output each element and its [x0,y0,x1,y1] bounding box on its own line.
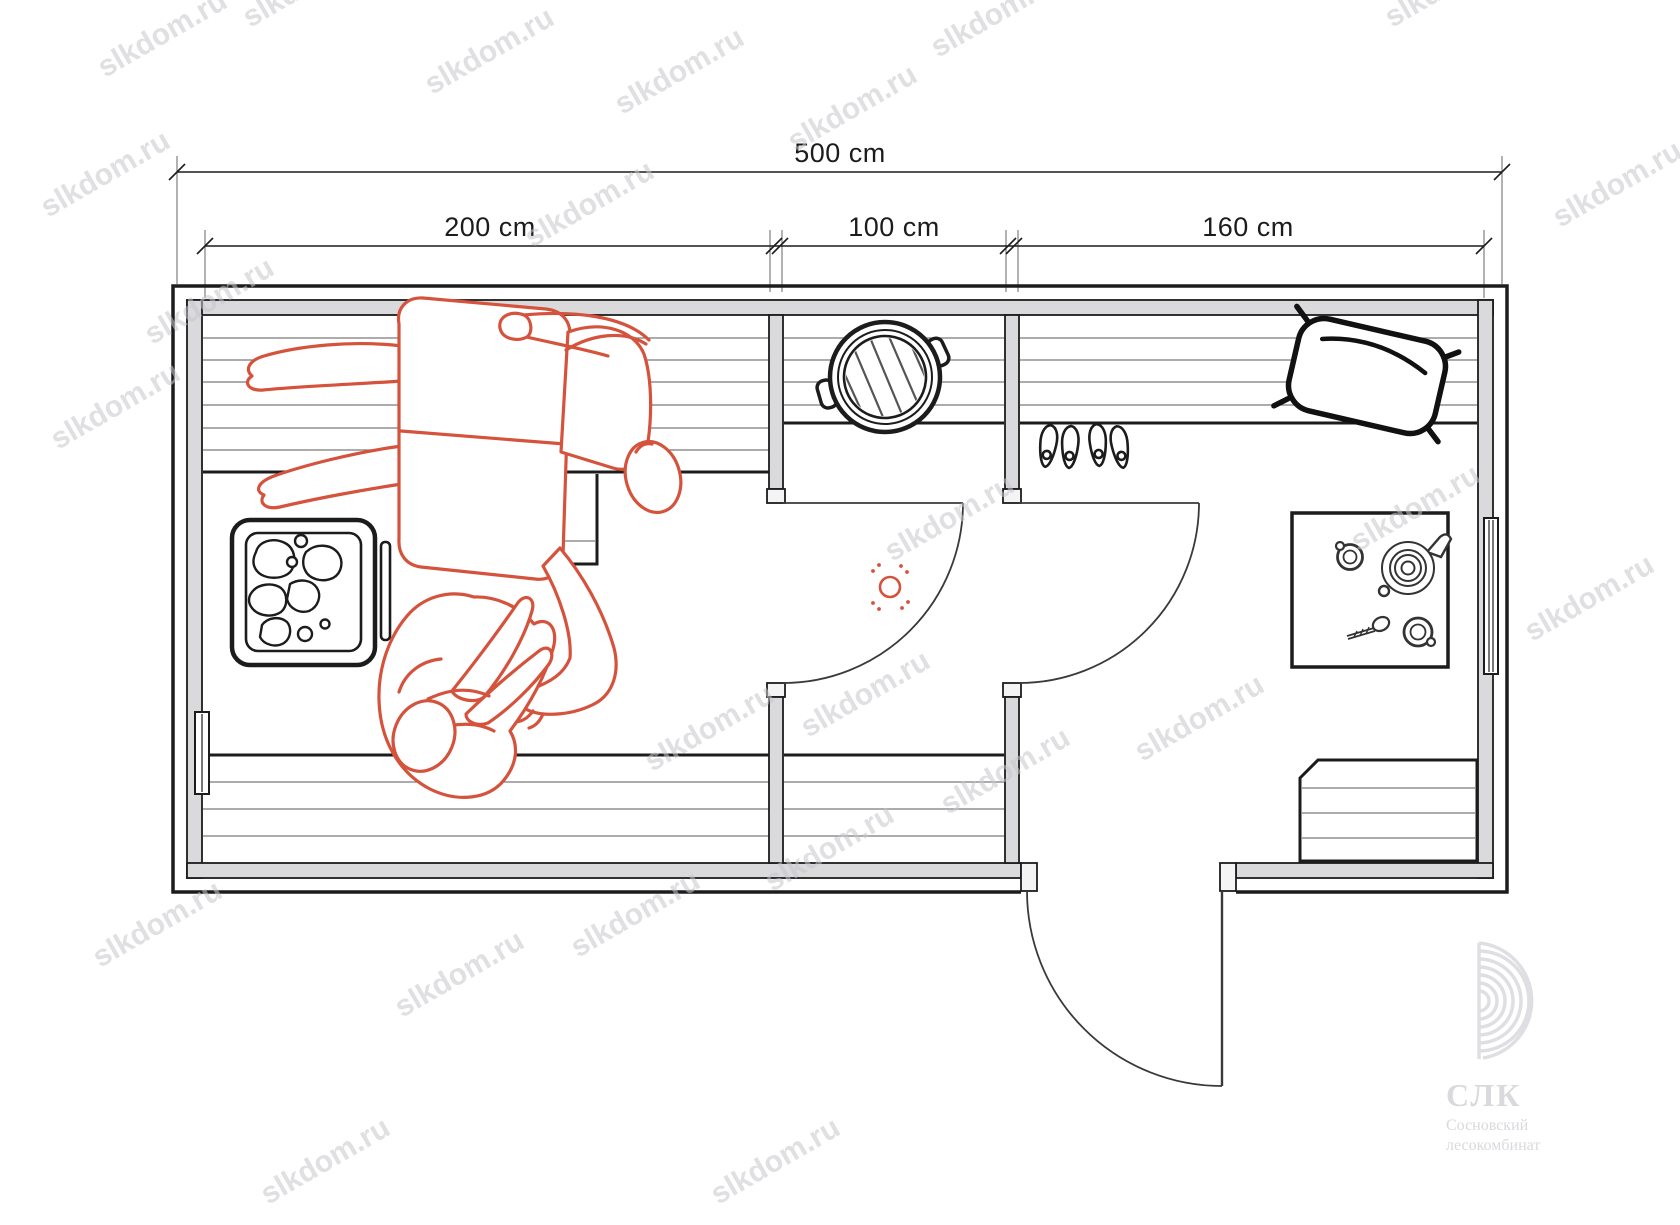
logo-subtitle-2: лесокомбинат [1446,1137,1540,1154]
brand-logo: СЛК Сосновский лесокомбинат [1446,943,1540,1154]
rest-room-door-swing [1019,503,1199,683]
entrance-jamb-left [1021,863,1037,891]
stove-guard-rail [381,542,390,640]
tree-rings-icon [1479,943,1532,1059]
partition-2-upper [1005,315,1019,489]
watermark: slkdom.ru [237,0,378,34]
wash-tub-icon [815,316,951,436]
interior-doors [783,503,1199,683]
entrance-door [1021,863,1236,1086]
dimension-total: 500 cm [169,138,1510,180]
watermark: slkdom.ru [639,678,780,778]
partition-1-upper [769,315,783,489]
slippers-icon [1037,423,1131,469]
partition-1-cap-top [767,489,785,503]
watermark: slkdom.ru [419,1,560,101]
dimension-rooms: 200 cm 100 cm 160 cm [197,212,1492,254]
floor-drain-icon [871,563,910,611]
right-window-icon [1484,518,1498,674]
logo-subtitle-1: Сосновский [1446,1117,1529,1134]
entrance-door-swing [1027,891,1222,1086]
dimension-wash-room-label: 100 cm [848,212,940,242]
watermark: slkdom.ru [389,924,530,1024]
watermark: slkdom.ru [1547,134,1680,234]
corner-bench [1300,760,1477,861]
watermark: slkdom.ru [1379,0,1520,34]
sitting-person-icon [379,594,555,797]
left-window-icon [195,712,209,794]
watermark: slkdom.ru [255,1111,396,1211]
watermark: slkdom.ru [795,644,936,744]
watermark: slkdom.ru [92,0,233,84]
dimension-rest-room-label: 160 cm [1202,212,1294,242]
logo-abbr: СЛК [1446,1077,1521,1113]
watermark: slkdom.ru [45,356,186,456]
rest-room [1020,306,1498,861]
watermark: slkdom.ru [87,874,228,974]
partition-1-lower [769,697,783,863]
watermark: slkdom.ru [925,0,1066,64]
bottom-wall-lining-right [1236,863,1493,878]
sauna-stove [232,520,390,665]
watermark: slkdom.ru [1519,548,1660,648]
partition-2-cap-bottom [1003,683,1021,697]
watermark: slkdom.ru [35,124,176,224]
entrance-jamb-right [1220,863,1236,891]
wash-room [784,316,1004,836]
watermark: slkdom.ru [1129,668,1270,768]
bottom-wall-lining-left [187,863,1021,878]
watermark: slkdom.ru [879,468,1020,568]
watermark: slkdom.ru [609,21,750,121]
watermark: slkdom.ru [705,1111,846,1211]
dimension-annotations: 500 cm 200 cm 100 cm 160 cm [169,138,1510,298]
watermark: slkdom.ru [519,154,660,254]
floor-plan-canvas: 500 cm 200 cm 100 cm 160 cm [0,0,1680,1225]
